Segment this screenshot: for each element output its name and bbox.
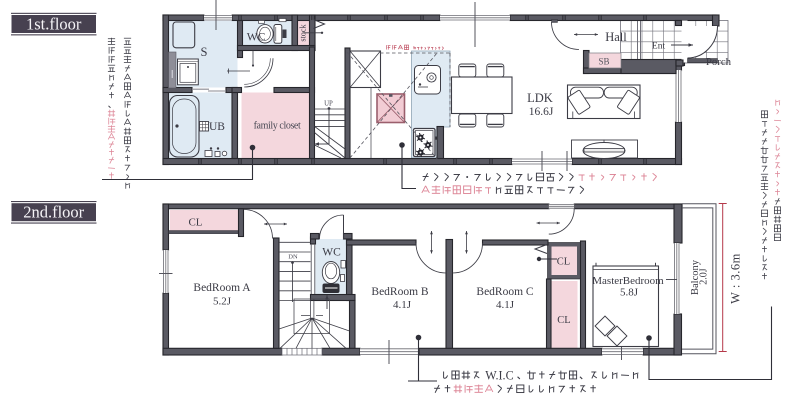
svg-text:2nd.floor: 2nd.floor — [23, 203, 84, 222]
svg-text:WC: WC — [322, 247, 341, 259]
svg-text:CL: CL — [188, 217, 202, 229]
svg-text:S: S — [201, 45, 208, 59]
svg-text:CL: CL — [557, 315, 570, 326]
svg-text:Porch: Porch — [706, 56, 732, 68]
svg-text:W.I.C: W.I.C — [485, 369, 513, 383]
svg-text:BedRoom C: BedRoom C — [476, 286, 534, 298]
svg-text:W : 3.6m: W : 3.6m — [729, 253, 743, 304]
svg-text:CL: CL — [557, 257, 570, 268]
svg-text:UB: UB — [209, 121, 225, 133]
svg-text:SB: SB — [598, 57, 609, 67]
svg-text:1st.floor: 1st.floor — [26, 14, 82, 33]
svg-text:Hall: Hall — [605, 30, 627, 44]
svg-text:4.1J: 4.1J — [496, 299, 515, 311]
svg-text:WC: WC — [247, 32, 266, 44]
svg-text:LDK: LDK — [527, 91, 553, 105]
svg-text:5.8J: 5.8J — [620, 287, 639, 299]
svg-text:family closet: family closet — [254, 121, 301, 132]
svg-text:UP: UP — [324, 101, 333, 108]
svg-text:5.2J: 5.2J — [213, 296, 232, 308]
svg-text:MasterBedroom: MasterBedroom — [592, 275, 664, 287]
svg-text:BedRoom B: BedRoom B — [371, 286, 429, 298]
svg-text:2.0J: 2.0J — [699, 268, 710, 285]
svg-text:BedRoom A: BedRoom A — [193, 282, 251, 294]
svg-text:Ent: Ent — [652, 42, 666, 52]
svg-text:16.6J: 16.6J — [529, 106, 554, 118]
svg-text:DN: DN — [288, 254, 298, 261]
svg-text:4.1J: 4.1J — [393, 299, 412, 311]
